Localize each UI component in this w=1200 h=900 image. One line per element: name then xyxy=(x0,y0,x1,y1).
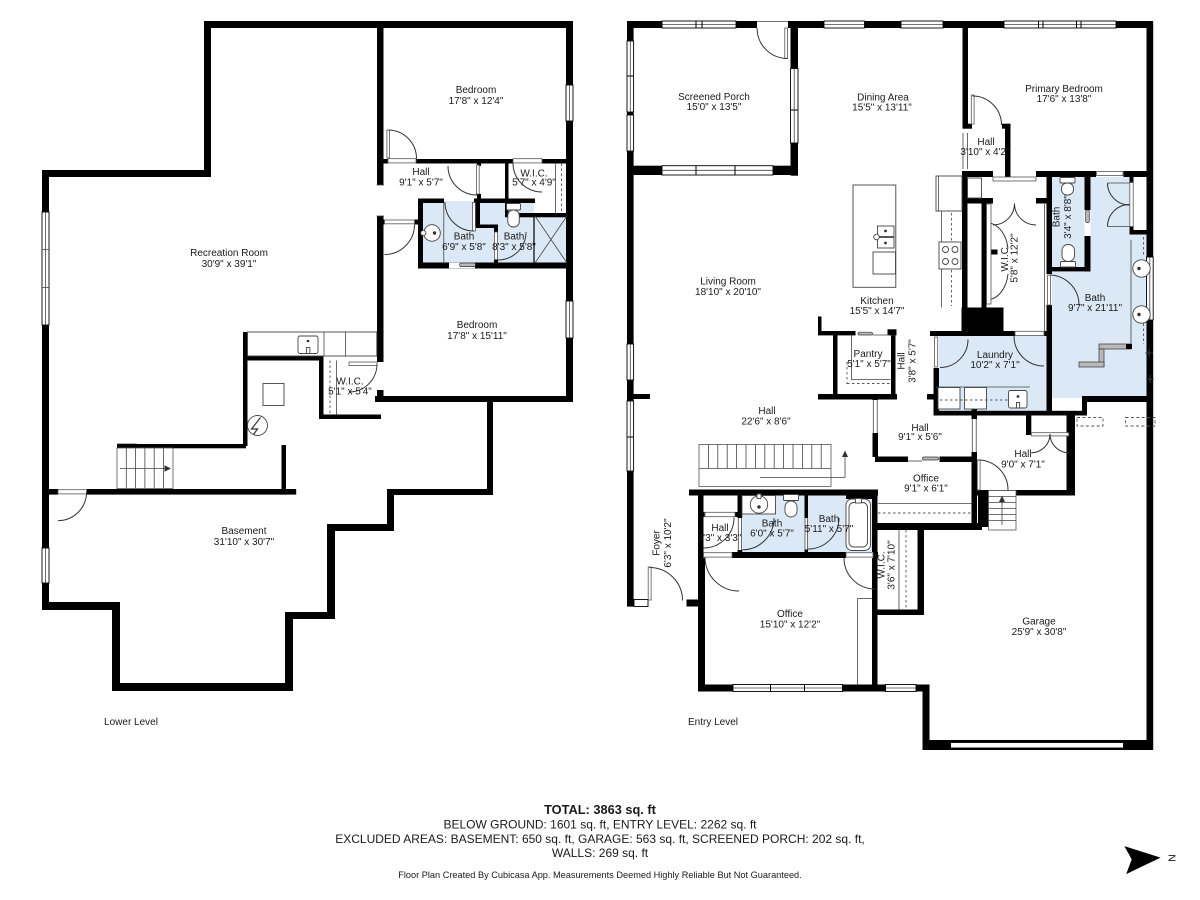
svg-text:5'11" x 5'7": 5'11" x 5'7" xyxy=(805,524,854,535)
svg-text:17'8" x 12'4": 17'8" x 12'4" xyxy=(449,96,504,107)
svg-text:Basement: Basement xyxy=(221,526,266,537)
svg-text:Office: Office xyxy=(777,609,803,620)
svg-text:Living Room: Living Room xyxy=(700,277,756,288)
svg-text:Floor Plan Created By Cubicasa: Floor Plan Created By Cubicasa App. Meas… xyxy=(398,870,801,880)
svg-text:3'4" x 8'8": 3'4" x 8'8" xyxy=(1063,195,1074,239)
svg-text:Bath: Bath xyxy=(1052,207,1063,228)
svg-text:5'7" x 4'9": 5'7" x 4'9" xyxy=(512,178,556,189)
svg-text:31'10" x 30'7": 31'10" x 30'7" xyxy=(214,537,275,548)
svg-text:9'0" x 7'1": 9'0" x 7'1" xyxy=(1001,460,1045,471)
svg-text:15'10" x 12'2": 15'10" x 12'2" xyxy=(760,620,821,631)
svg-text:Garage: Garage xyxy=(1022,617,1056,628)
svg-text:9'1" x 5'6": 9'1" x 5'6" xyxy=(898,432,942,443)
svg-text:BELOW GROUND: 1601 sq. ft, ENT: BELOW GROUND: 1601 sq. ft, ENTRY LEVEL: … xyxy=(443,818,757,832)
svg-text:Hall: Hall xyxy=(1014,449,1031,460)
svg-text:Bath: Bath xyxy=(454,232,475,243)
svg-text:Lower Level: Lower Level xyxy=(104,717,158,728)
svg-text:3'6" x 7'10": 3'6" x 7'10" xyxy=(887,540,898,590)
svg-text:15'5" x 14'7": 15'5" x 14'7" xyxy=(850,306,905,317)
svg-text:N: N xyxy=(1166,854,1178,862)
svg-text:15'5" x 13'11": 15'5" x 13'11" xyxy=(852,103,912,114)
svg-text:9'1" x 5'7": 9'1" x 5'7" xyxy=(399,178,443,189)
svg-text:Recreation Room: Recreation Room xyxy=(190,248,268,259)
svg-text:9'1" x 6'1": 9'1" x 6'1" xyxy=(904,484,948,495)
svg-text:6'3" x 10'2": 6'3" x 10'2" xyxy=(663,518,674,568)
svg-text:TOTAL: 3863 sq. ft: TOTAL: 3863 sq. ft xyxy=(544,802,657,817)
svg-text:8'3" x 5'8": 8'3" x 5'8" xyxy=(492,242,536,253)
svg-text:WALLS: 269 sq. ft: WALLS: 269 sq. ft xyxy=(552,846,649,860)
svg-text:Foyer: Foyer xyxy=(652,530,663,556)
svg-text:3'8" x 5'7": 3'8" x 5'7" xyxy=(908,339,919,383)
svg-text:EXCLUDED AREAS: BASEMENT: 650: EXCLUDED AREAS: BASEMENT: 650 sq. ft, GA… xyxy=(335,832,865,846)
svg-text:Bedroom: Bedroom xyxy=(457,320,498,331)
svg-text:5'1" x 5'4": 5'1" x 5'4" xyxy=(328,387,372,398)
svg-text:Hall: Hall xyxy=(758,406,775,417)
svg-text:9'7" x 21'11": 9'7" x 21'11" xyxy=(1068,303,1123,314)
svg-text:17'8" x 15'11": 17'8" x 15'11" xyxy=(447,331,507,342)
svg-text:3'3" x 3'3": 3'3" x 3'3" xyxy=(698,533,742,544)
svg-text:10'2" x 7'1": 10'2" x 7'1" xyxy=(970,360,1020,371)
svg-text:18'10" x 20'10": 18'10" x 20'10" xyxy=(695,287,761,298)
svg-text:6'0" x 5'7": 6'0" x 5'7" xyxy=(750,529,794,540)
svg-text:15'0" x 13'5": 15'0" x 13'5" xyxy=(687,102,742,113)
svg-text:Bedroom: Bedroom xyxy=(456,85,497,96)
svg-text:22'6" x 8'6": 22'6" x 8'6" xyxy=(741,417,791,428)
svg-text:6'9" x 5'8": 6'9" x 5'8" xyxy=(442,242,486,253)
svg-text:30'9" x 39'1": 30'9" x 39'1" xyxy=(202,259,257,270)
svg-text:Hall: Hall xyxy=(412,167,429,178)
svg-text:Entry Level: Entry Level xyxy=(688,717,738,728)
svg-text:Bath: Bath xyxy=(504,232,525,243)
svg-text:5'1" x 5'7": 5'1" x 5'7" xyxy=(847,359,891,370)
svg-text:Hall: Hall xyxy=(897,352,908,369)
svg-text:17'6" x 13'8": 17'6" x 13'8" xyxy=(1037,94,1092,105)
svg-text:5'8" x 12'2": 5'8" x 12'2" xyxy=(1010,233,1021,283)
svg-text:3'10" x 4'2": 3'10" x 4'2" xyxy=(960,147,1010,158)
svg-text:25'9" x 30'8": 25'9" x 30'8" xyxy=(1012,627,1067,638)
